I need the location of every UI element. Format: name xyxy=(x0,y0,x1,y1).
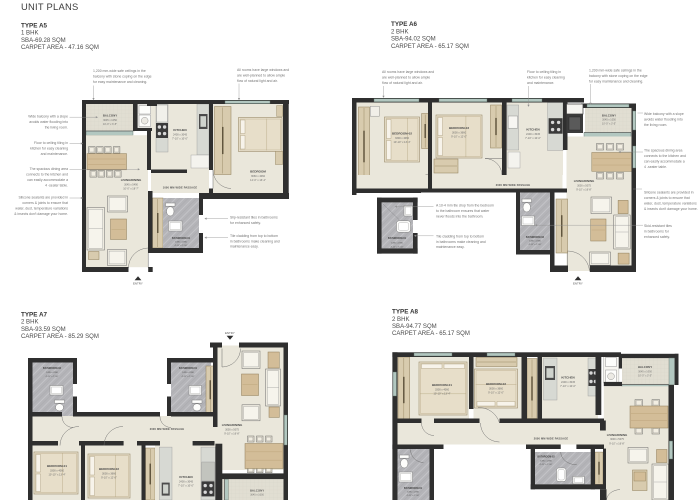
svg-text:& insects don't damage your ho: & insects don't damage your home. xyxy=(644,207,698,211)
svg-text:CARPET AREA - 65.17 SQM: CARPET AREA - 65.17 SQM xyxy=(391,44,469,50)
svg-text:never floods into the bathroom: never floods into the bathroom. xyxy=(436,214,483,218)
svg-text:7'-10" x 10'-0": 7'-10" x 10'-0" xyxy=(172,137,188,141)
svg-text:9'-10" x 12'-0": 9'-10" x 12'-0" xyxy=(101,476,117,480)
svg-text:SBA-69.28 SQM: SBA-69.28 SQM xyxy=(21,38,66,44)
svg-text:kitchen for easy cleaning: kitchen for easy cleaning xyxy=(30,146,68,150)
svg-text:can easily accommodate a: can easily accommodate a xyxy=(644,160,685,164)
svg-text:10'-0" x 18'-7": 10'-0" x 18'-7" xyxy=(123,188,138,191)
svg-text:TYPE A7: TYPE A7 xyxy=(21,311,48,318)
svg-text:All rooms have large windows a: All rooms have large windows and xyxy=(382,70,434,74)
svg-text:CARPET AREA - 65.17 SQM: CARPET AREA - 65.17 SQM xyxy=(392,331,470,337)
svg-text:BATHROOM-01: BATHROOM-01 xyxy=(388,237,407,240)
svg-text:for enhanced safety.: for enhanced safety. xyxy=(230,221,261,225)
svg-text:SBA-94.77 SQM: SBA-94.77 SQM xyxy=(392,324,437,330)
svg-text:3300 x 4060: 3300 x 4060 xyxy=(50,468,65,472)
svg-text:BATHROOM-02: BATHROOM-02 xyxy=(43,367,62,370)
svg-text:connects to the kitchen and: connects to the kitchen and xyxy=(26,173,68,177)
svg-text:3000 x 3660: 3000 x 3660 xyxy=(452,130,467,134)
svg-text:BEDROOM-02: BEDROOM-02 xyxy=(486,382,506,386)
svg-text:corners & joints to ensure tha: corners & joints to ensure that xyxy=(644,196,690,200)
svg-text:BEDROOM-02: BEDROOM-02 xyxy=(99,467,119,471)
svg-text:SBA-93.59 SQM: SBA-93.59 SQM xyxy=(21,327,66,333)
svg-text:flow of natural light and air.: flow of natural light and air. xyxy=(382,81,423,85)
svg-text:Skid-resistant tiles: Skid-resistant tiles xyxy=(644,224,672,228)
svg-text:The spacious dining area: The spacious dining area xyxy=(644,149,682,153)
svg-text:BEDROOM-02: BEDROOM-02 xyxy=(392,132,412,136)
svg-text:4 -seater table.: 4 -seater table. xyxy=(45,183,68,187)
svg-text:9'-10" x 12'-0": 9'-10" x 12'-0" xyxy=(488,391,504,395)
svg-text:& insects don't damage your ho: & insects don't damage your home. xyxy=(14,212,68,216)
svg-text:TYPE A5: TYPE A5 xyxy=(21,22,48,29)
svg-text:3660 x 4060: 3660 x 4060 xyxy=(251,174,266,178)
svg-text:4 -seater table.: 4 -seater table. xyxy=(644,165,667,169)
svg-text:3000 x 5075: 3000 x 5075 xyxy=(225,428,239,431)
svg-text:BEDROOM-03: BEDROOM-03 xyxy=(449,126,469,130)
svg-text:2 BHK: 2 BHK xyxy=(392,317,409,323)
svg-text:9'-10" x 16'-8": 9'-10" x 16'-8" xyxy=(609,442,624,445)
svg-text:9'-10" x 16'-8": 9'-10" x 16'-8" xyxy=(576,189,591,192)
svg-text:the living room.: the living room. xyxy=(45,125,68,129)
svg-text:maintenance easy.: maintenance easy. xyxy=(436,245,465,249)
svg-text:enhanced safety.: enhanced safety. xyxy=(644,235,670,239)
svg-text:ENTRY: ENTRY xyxy=(133,282,143,286)
svg-text:BATHROOM-01: BATHROOM-01 xyxy=(404,487,423,490)
svg-text:4'-11" x 7'-10": 4'-11" x 7'-10" xyxy=(174,245,187,247)
svg-text:3000 x 5075: 3000 x 5075 xyxy=(577,184,591,187)
svg-text:in bathrooms make cleaning and: in bathrooms make cleaning and xyxy=(436,240,486,244)
svg-text:water, dust, temperature varia: water, dust, temperature variations xyxy=(15,207,68,211)
svg-text:to the bathroom ensures that w: to the bathroom ensures that water xyxy=(436,209,490,213)
svg-text:10'-10" x 13'-4": 10'-10" x 13'-4" xyxy=(393,140,410,144)
svg-text:Floor to ceiling tiling in: Floor to ceiling tiling in xyxy=(34,141,68,145)
svg-text:LIVING/DINING: LIVING/DINING xyxy=(121,178,142,182)
svg-text:in bathrooms make cleaning and: in bathrooms make cleaning and xyxy=(230,239,280,243)
svg-text:7'-10" x 10'-0": 7'-10" x 10'-0" xyxy=(560,384,576,388)
svg-text:are well-planned to allow ampl: are well-planned to allow ample xyxy=(237,73,285,77)
svg-text:7'-10" x 10'-0": 7'-10" x 10'-0" xyxy=(525,136,541,140)
svg-text:balcony with stone coping on t: balcony with stone coping on the edge xyxy=(93,74,152,78)
svg-text:2000 MM WIDE PASSAGE: 2000 MM WIDE PASSAGE xyxy=(534,436,569,440)
svg-text:for easy maintenance and clean: for easy maintenance and cleaning. xyxy=(589,79,643,83)
svg-text:1495 x 2390: 1495 x 2390 xyxy=(182,372,195,374)
svg-text:and maintenance.: and maintenance. xyxy=(527,81,554,85)
svg-text:2400 x 3045: 2400 x 3045 xyxy=(173,132,188,136)
svg-text:3000 x 5075: 3000 x 5075 xyxy=(610,438,624,441)
svg-text:avoids water flooding into: avoids water flooding into xyxy=(29,120,68,124)
svg-text:Wide balcony with a slope: Wide balcony with a slope xyxy=(28,115,68,119)
svg-text:avoids water flooding into: avoids water flooding into xyxy=(644,117,683,121)
svg-text:Silicone sealants are provided: Silicone sealants are provided in xyxy=(644,191,694,195)
svg-text:can easily accommodate a: can easily accommodate a xyxy=(27,178,68,182)
svg-text:2 BHK: 2 BHK xyxy=(21,320,38,326)
svg-text:2400 x 3045: 2400 x 3045 xyxy=(526,132,541,136)
svg-text:for easy maintenance and clean: for easy maintenance and cleaning. xyxy=(93,80,147,84)
svg-text:UNIT PLANS: UNIT PLANS xyxy=(21,1,79,12)
svg-text:1495 x 2390: 1495 x 2390 xyxy=(529,240,542,242)
svg-text:9'-10" x 12'-0": 9'-10" x 12'-0" xyxy=(451,135,467,139)
svg-text:3045 x 5490: 3045 x 5490 xyxy=(124,183,138,186)
svg-text:1495 x 2390: 1495 x 2390 xyxy=(175,241,188,243)
svg-text:KITCHEN: KITCHEN xyxy=(179,475,192,479)
svg-text:and maintenance.: and maintenance. xyxy=(41,152,68,156)
svg-text:SBA-94.02 SQM: SBA-94.02 SQM xyxy=(391,37,436,43)
svg-text:BATHROOM-02: BATHROOM-02 xyxy=(537,456,555,459)
svg-text:3000 x 3660: 3000 x 3660 xyxy=(102,471,117,475)
svg-text:10'-10" x 13'-4": 10'-10" x 13'-4" xyxy=(433,392,450,396)
svg-text:LIVING/DINING: LIVING/DINING xyxy=(574,179,595,183)
svg-text:1000 MM WIDE PASSAGE: 1000 MM WIDE PASSAGE xyxy=(163,185,198,189)
svg-text:TYPE A8: TYPE A8 xyxy=(392,309,419,316)
svg-text:KITCHEN: KITCHEN xyxy=(173,128,186,132)
svg-text:BEDROOM: BEDROOM xyxy=(250,170,266,174)
svg-text:7'-10" x 10'-0": 7'-10" x 10'-0" xyxy=(178,484,194,488)
svg-text:the living room.: the living room. xyxy=(644,123,667,127)
svg-text:in bathrooms for: in bathrooms for xyxy=(644,229,670,233)
svg-text:4'-11" x 7'-10": 4'-11" x 7'-10" xyxy=(181,376,194,378)
svg-text:2 BHK: 2 BHK xyxy=(391,29,408,35)
svg-text:Tile cladding from top to bott: Tile cladding from top to bottom xyxy=(436,234,484,238)
svg-text:ENTRY: ENTRY xyxy=(573,282,583,286)
svg-text:Wide balcony with a slope: Wide balcony with a slope xyxy=(644,112,684,116)
svg-text:1495 x 2390: 1495 x 2390 xyxy=(540,460,553,462)
svg-text:2000 MM WIDE PASSAGE: 2000 MM WIDE PASSAGE xyxy=(496,183,531,187)
svg-text:12'-0" x 13'-4": 12'-0" x 13'-4" xyxy=(250,178,266,182)
svg-text:CARPET AREA - 85.29 SQM: CARPET AREA - 85.29 SQM xyxy=(21,334,99,340)
svg-text:4'-11" x 7'-10": 4'-11" x 7'-10" xyxy=(406,495,419,497)
svg-text:LIVING/DINING: LIVING/DINING xyxy=(222,423,243,427)
svg-text:maintenance easy.: maintenance easy. xyxy=(230,245,259,249)
svg-text:kitchen for easy cleaning: kitchen for easy cleaning xyxy=(527,75,565,79)
svg-text:4'-11" x 7'-10": 4'-11" x 7'-10" xyxy=(528,244,541,246)
svg-text:balcony with stone coping on t: balcony with stone coping on the edge xyxy=(589,74,648,78)
svg-text:connects to the kitchen and: connects to the kitchen and xyxy=(644,154,686,158)
svg-text:1,200 mm-wide safe ceilings in: 1,200 mm-wide safe ceilings in the xyxy=(589,69,642,73)
svg-text:LIVING/DINING: LIVING/DINING xyxy=(607,433,628,437)
svg-text:9'-10" x 16'-8": 9'-10" x 16'-8" xyxy=(224,433,239,436)
svg-text:1495 x 2390: 1495 x 2390 xyxy=(407,491,420,493)
svg-text:A 10-4 mm tile drop from the b: A 10-4 mm tile drop from the bedroom xyxy=(436,204,494,208)
svg-text:water, dust, temperature varia: water, dust, temperature variations xyxy=(644,201,697,205)
svg-text:Floor to ceiling tiling in: Floor to ceiling tiling in xyxy=(527,70,561,74)
svg-text:BATHROOM-01: BATHROOM-01 xyxy=(179,367,198,370)
svg-text:Tile cladding from top to bott: Tile cladding from top to bottom xyxy=(230,234,278,238)
svg-text:2400 x 3045: 2400 x 3045 xyxy=(561,380,576,384)
svg-text:2000 MM WIDE PASSAGE: 2000 MM WIDE PASSAGE xyxy=(150,427,185,431)
svg-text:1 BHK: 1 BHK xyxy=(21,31,38,37)
svg-text:2400 x 3045: 2400 x 3045 xyxy=(179,479,194,483)
svg-text:4'-11" x 7'-10": 4'-11" x 7'-10" xyxy=(539,464,552,466)
svg-text:The spacious dining area: The spacious dining area xyxy=(30,167,68,171)
svg-text:TYPE A6: TYPE A6 xyxy=(391,21,418,28)
svg-text:flow of natural light and air.: flow of natural light and air. xyxy=(237,79,278,83)
svg-text:1495 x 2390: 1495 x 2390 xyxy=(391,242,404,244)
svg-text:BEDROOM-01: BEDROOM-01 xyxy=(432,383,452,387)
svg-text:BATHROOM-01: BATHROOM-01 xyxy=(172,237,191,240)
svg-text:are well-planned to allow ampl: are well-planned to allow ample xyxy=(382,75,430,79)
svg-text:corners & joints to ensure tha: corners & joints to ensure that xyxy=(22,201,68,205)
svg-text:10'-10" x 13'-4": 10'-10" x 13'-4" xyxy=(48,473,65,477)
svg-text:1,200 mm-wide safe ceilings in: 1,200 mm-wide safe ceilings in the xyxy=(93,69,146,73)
svg-text:3000 x 3660: 3000 x 3660 xyxy=(489,386,504,390)
svg-text:4'-11" x 7'-10": 4'-11" x 7'-10" xyxy=(390,247,403,249)
svg-text:CARPET AREA - 47.16 SQM: CARPET AREA - 47.16 SQM xyxy=(21,45,99,51)
svg-text:BEDROOM-01: BEDROOM-01 xyxy=(47,464,67,468)
svg-text:Slip-resistant tiles in bathro: Slip-resistant tiles in bathrooms xyxy=(230,215,278,219)
svg-text:BATHROOM-02: BATHROOM-02 xyxy=(526,236,545,239)
svg-text:KITCHEN: KITCHEN xyxy=(561,376,574,380)
svg-text:ENTRY: ENTRY xyxy=(225,331,235,335)
svg-text:Silicone sealants are provided: Silicone sealants are provided in xyxy=(19,196,69,200)
svg-text:KITCHEN: KITCHEN xyxy=(526,128,539,132)
svg-text:3300 x 4060: 3300 x 4060 xyxy=(435,387,450,391)
svg-text:4'-11" x 7'-10": 4'-11" x 7'-10" xyxy=(45,376,58,378)
svg-text:1495 x 2390: 1495 x 2390 xyxy=(46,372,59,374)
svg-text:3300 x 4060: 3300 x 4060 xyxy=(395,136,410,140)
svg-text:All rooms have large windows a: All rooms have large windows and xyxy=(237,68,289,72)
